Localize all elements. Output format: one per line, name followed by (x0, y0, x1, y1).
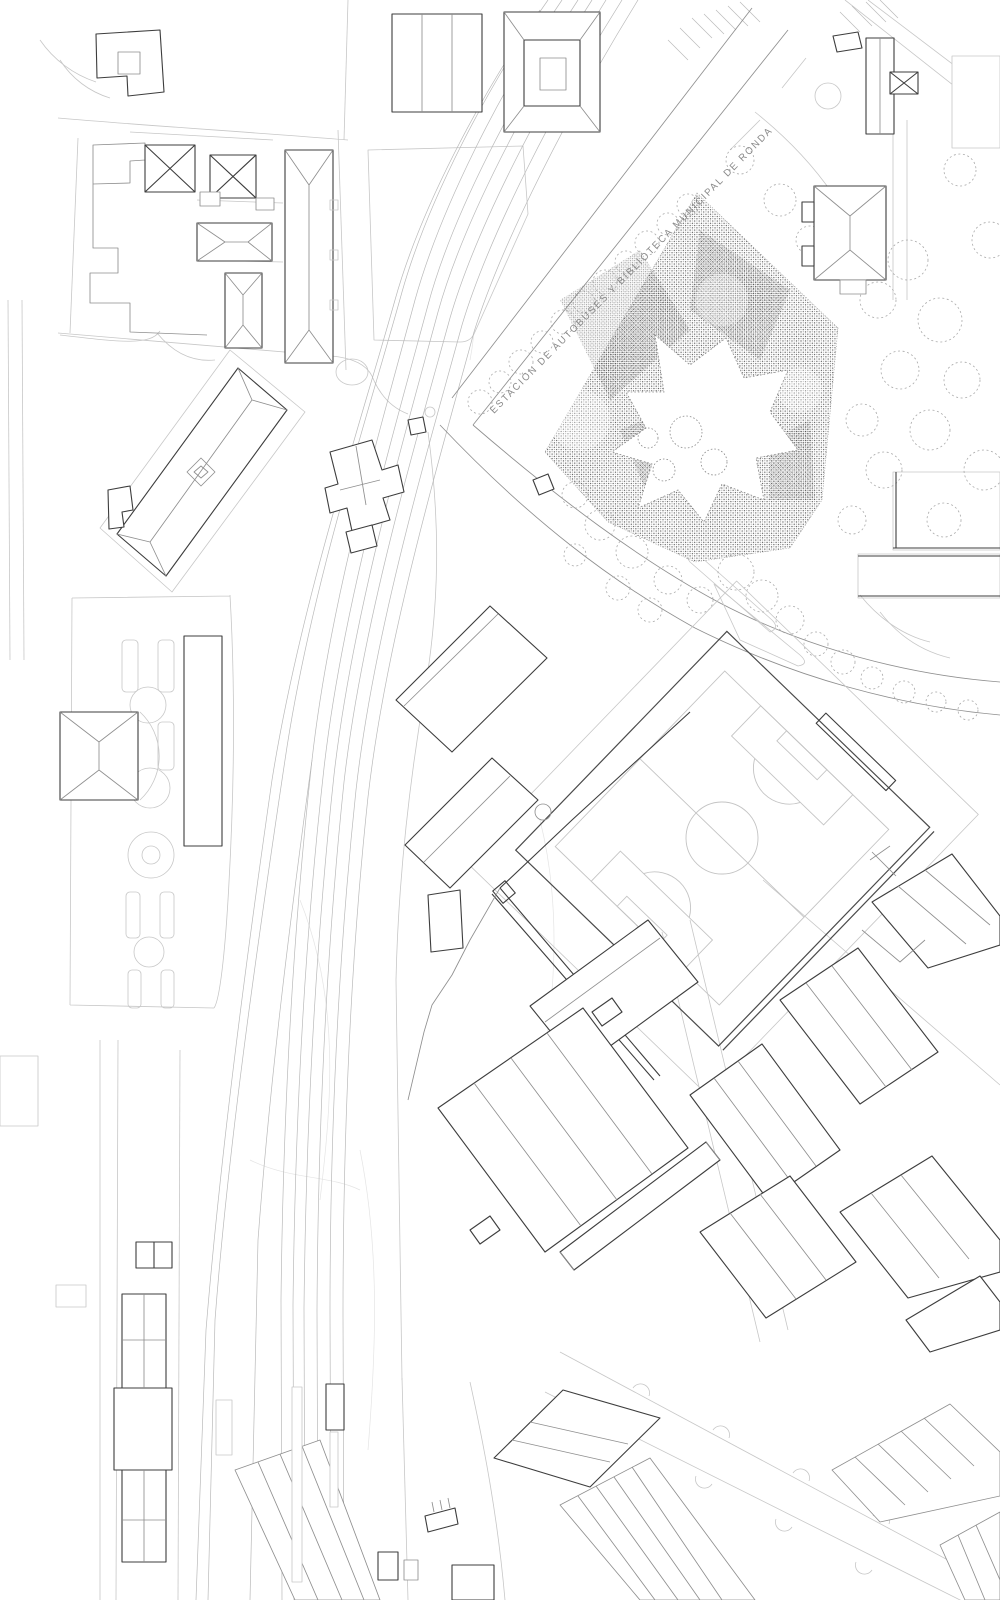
sports-hall (438, 920, 720, 1270)
site-plan: ESTACIÓN DE AUTOBUSES Y BIBLIOTECA MUNIC… (0, 0, 1000, 1600)
buildings (60, 12, 1000, 1600)
school-cluster (90, 143, 338, 363)
nw-corner-building (96, 30, 164, 96)
west-hip-building (60, 712, 159, 800)
garden-promenade (122, 640, 174, 1008)
top-centre-buildings (392, 12, 600, 132)
central-cluster (325, 417, 554, 553)
industrial-sheds (396, 606, 690, 1100)
embankment-hatch (668, 0, 898, 60)
site-plan-canvas: ESTACIÓN DE AUTOBUSES Y BIBLIOTECA MUNIC… (0, 0, 1000, 1600)
top-right-buildings (802, 32, 918, 294)
long-hip-roof-building (100, 350, 305, 592)
park-and-project-site (468, 146, 1000, 720)
bottom-rowhouses (235, 1390, 1000, 1600)
se-blocks (690, 846, 1000, 1352)
narrow-long-building (184, 636, 222, 846)
